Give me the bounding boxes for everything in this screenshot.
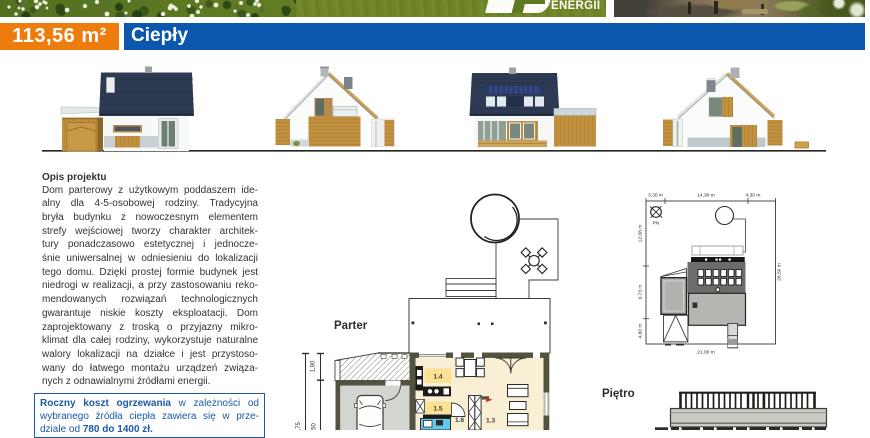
svg-text:8,75: 8,75 xyxy=(296,422,302,430)
svg-text:1.3: 1.3 xyxy=(486,418,495,425)
svg-text:4,30 m: 4,30 m xyxy=(746,193,761,199)
svg-text:14,30 m: 14,30 m xyxy=(697,193,715,199)
svg-text:1.4: 1.4 xyxy=(433,374,442,381)
svg-text:9,73 m: 9,73 m xyxy=(638,285,644,300)
svg-text:26,50 m: 26,50 m xyxy=(777,263,783,281)
svg-text:1,90: 1,90 xyxy=(311,360,317,372)
svg-text:12,08 m: 12,08 m xyxy=(638,225,644,243)
svg-text:21,00 m: 21,00 m xyxy=(697,350,715,356)
svg-text:PN: PN xyxy=(653,221,659,226)
svg-text:1.5: 1.5 xyxy=(433,405,442,412)
svg-text:4,80 m: 4,80 m xyxy=(638,324,644,339)
svg-text:1.6: 1.6 xyxy=(455,417,464,424)
svg-text:2,50: 2,50 xyxy=(312,423,318,430)
svg-text:3,30 m: 3,30 m xyxy=(648,193,663,199)
